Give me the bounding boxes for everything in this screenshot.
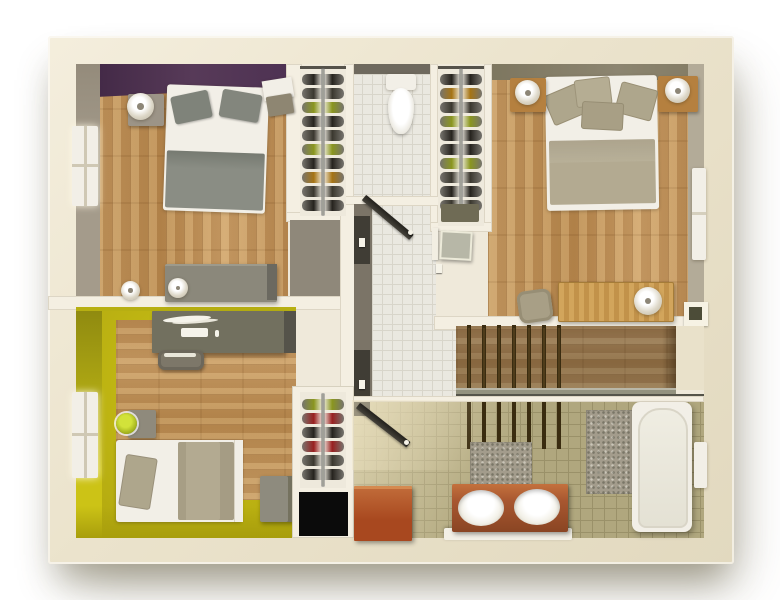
lamp xyxy=(515,80,540,105)
cherry-box xyxy=(354,486,412,541)
window-mullion xyxy=(84,392,87,478)
bed-single xyxy=(116,440,242,522)
closet3-interior xyxy=(300,392,346,488)
wine-rack-rail xyxy=(460,69,462,215)
blanket-taupe xyxy=(549,139,656,205)
window-mullion xyxy=(84,126,87,206)
blanket-gray xyxy=(165,150,265,210)
wall-niche-inner xyxy=(689,307,702,320)
dresser-end-cap xyxy=(267,264,277,300)
closet2-cabinet xyxy=(441,204,479,222)
door-handle-icon xyxy=(436,264,442,273)
chair-bedroom2 xyxy=(516,288,554,324)
desk-lamp xyxy=(634,287,662,315)
bathtub xyxy=(632,402,692,532)
sink-basin xyxy=(514,489,560,525)
bath-mat xyxy=(470,442,532,486)
lamp xyxy=(127,93,154,120)
wall-niche xyxy=(684,302,708,326)
lamp xyxy=(266,93,295,117)
window-bedroom1 xyxy=(72,126,98,206)
closet1-interior xyxy=(300,66,346,216)
bathtub-inner xyxy=(638,408,688,528)
bed-footboard xyxy=(234,440,243,522)
sage-folding-door xyxy=(439,230,472,261)
door-handle-icon xyxy=(359,380,365,389)
door-handle-icon xyxy=(408,230,413,235)
cup xyxy=(121,281,140,300)
door-handle-icon xyxy=(359,238,365,247)
double-sink-vanity xyxy=(452,484,568,532)
stair-tread-line xyxy=(483,328,485,388)
keyboard xyxy=(181,328,208,337)
black-void xyxy=(299,492,348,536)
closet2-interior xyxy=(438,66,484,226)
stair-tread-line xyxy=(498,328,500,388)
window-office xyxy=(72,392,98,478)
lamp-green xyxy=(116,413,137,434)
stairs-side-landing xyxy=(676,326,704,390)
bed-second xyxy=(545,75,659,211)
wall-closet2-bedroom2 xyxy=(484,64,492,230)
stairs-end-shadow xyxy=(662,326,676,390)
stair-tread-line xyxy=(558,328,560,388)
floorplan-stage xyxy=(0,0,780,600)
stair-tread-line xyxy=(543,328,545,388)
stair-tread-line xyxy=(468,328,470,388)
wc-top-wall-face xyxy=(352,64,434,74)
bath-mat xyxy=(586,410,634,494)
wine-rack-rail xyxy=(322,394,324,486)
lamp xyxy=(665,78,690,103)
stair-tread-line xyxy=(513,328,515,388)
mouse xyxy=(215,330,219,337)
stair-treads xyxy=(456,326,676,390)
blanket-taupe xyxy=(178,442,234,520)
lamp xyxy=(168,278,188,298)
storage-box xyxy=(260,476,294,522)
window-mullion xyxy=(692,212,706,215)
wine-rack-rail xyxy=(322,69,324,215)
bed-master xyxy=(163,84,269,213)
window-bathroom xyxy=(694,442,707,488)
chair-office xyxy=(158,350,204,370)
door-frame xyxy=(432,228,438,260)
stair-tread-line xyxy=(528,328,530,388)
pillow xyxy=(581,101,624,131)
window-bedroom2 xyxy=(692,168,706,260)
chair-arm xyxy=(164,353,196,357)
sink-basin xyxy=(458,490,504,526)
door-handle-icon xyxy=(404,440,409,445)
desk-office-side xyxy=(284,311,296,353)
